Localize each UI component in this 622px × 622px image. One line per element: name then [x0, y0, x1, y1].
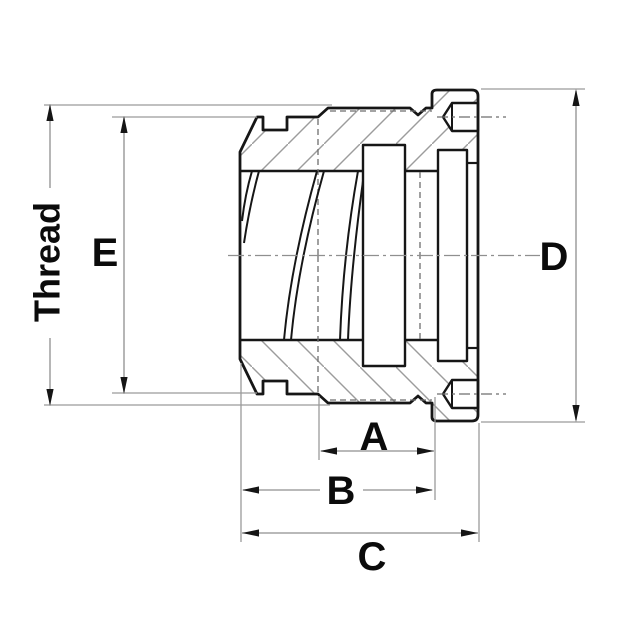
- dim-label-e: E: [92, 231, 119, 275]
- collar-groove-band: [438, 150, 467, 256]
- dim-label-thread: Thread: [27, 202, 68, 322]
- dim-label-a: A: [360, 415, 389, 459]
- hatch-area-nut-wall: [240, 108, 405, 171]
- sleeve-band: [363, 145, 405, 256]
- dim-label-c: C: [358, 535, 387, 579]
- fitting-upper-half: [240, 90, 506, 256]
- dim-label-d: D: [540, 235, 569, 279]
- technical-drawing-canvas: Thread E D A B C: [0, 0, 622, 622]
- dim-label-b: B: [327, 469, 356, 513]
- fitting-lower-half: [240, 255, 506, 421]
- fitting-section-drawing: Thread E D A B C: [0, 0, 622, 622]
